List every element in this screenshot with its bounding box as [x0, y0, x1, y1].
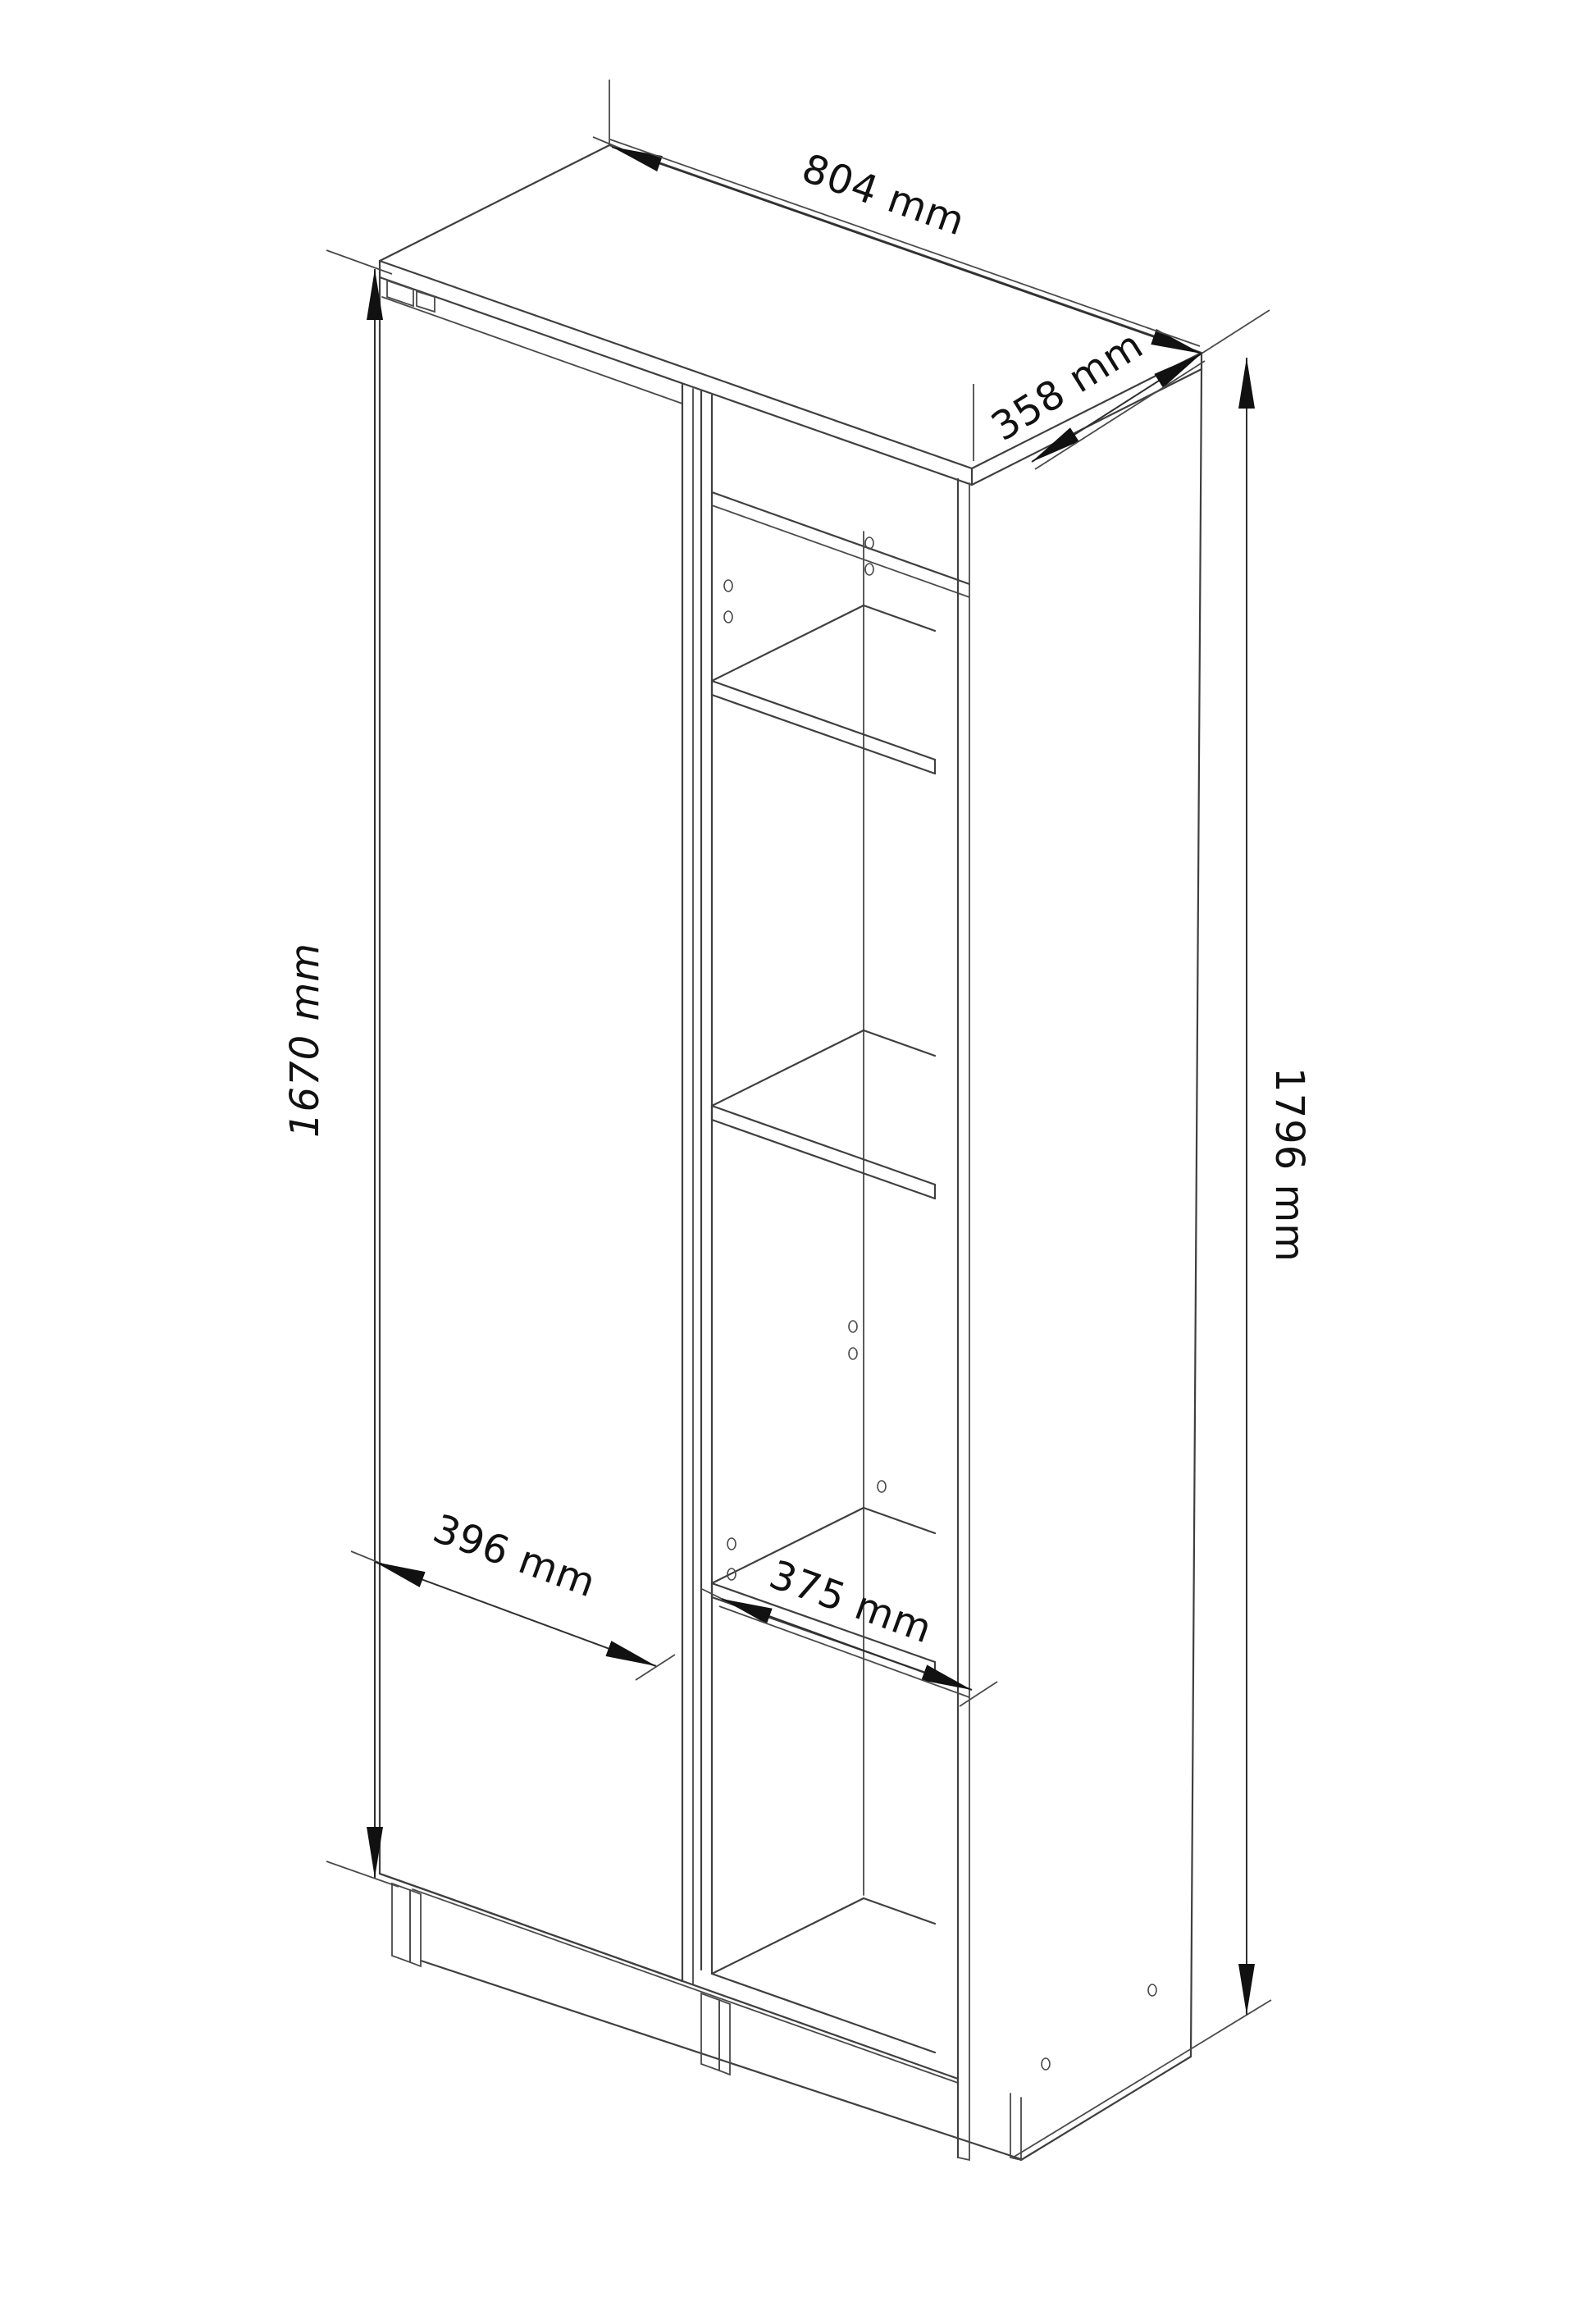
dimension-label-overall-depth: 358 mm	[983, 322, 1151, 450]
center-leg	[701, 1993, 730, 2075]
dimension-label-overall-width: 804 mm	[796, 145, 971, 245]
dim-door-height: 1670 mm	[282, 250, 399, 1887]
dim-door-width: 396 mm	[351, 1505, 675, 1680]
dim-overall-width: 804 mm	[593, 80, 1270, 354]
dimension-label-door-height: 1670 mm	[282, 943, 328, 1138]
drill-holes	[724, 537, 1156, 2070]
door-panel	[380, 277, 693, 1984]
front-left-leg	[392, 1884, 421, 1966]
shelf-2	[712, 1030, 935, 1199]
top-rail	[712, 492, 969, 597]
hinge-detail-icons	[382, 281, 682, 404]
cabinet-dimension-diagram: 804 mm 358 mm 1796 mm 1670 mm 396 mm 375…	[0, 0, 1596, 2315]
right-side-panel	[958, 369, 1202, 2160]
center-partition	[701, 391, 712, 1974]
dimension-label-overall-height: 1796 mm	[1266, 1067, 1312, 1263]
dim-overall-height: 1796 mm	[1013, 358, 1312, 2157]
technical-drawing-page: 804 mm 358 mm 1796 mm 1670 mm 396 mm 375…	[0, 0, 1596, 2315]
dim-overall-depth: 358 mm	[974, 322, 1205, 469]
cabinet-body	[380, 145, 1202, 2160]
top-panel	[380, 145, 1202, 485]
shelf-1	[712, 605, 935, 774]
dim-shelf-width: 375 mm	[702, 1551, 997, 1706]
dimension-label-shelf-width: 375 mm	[764, 1551, 938, 1652]
